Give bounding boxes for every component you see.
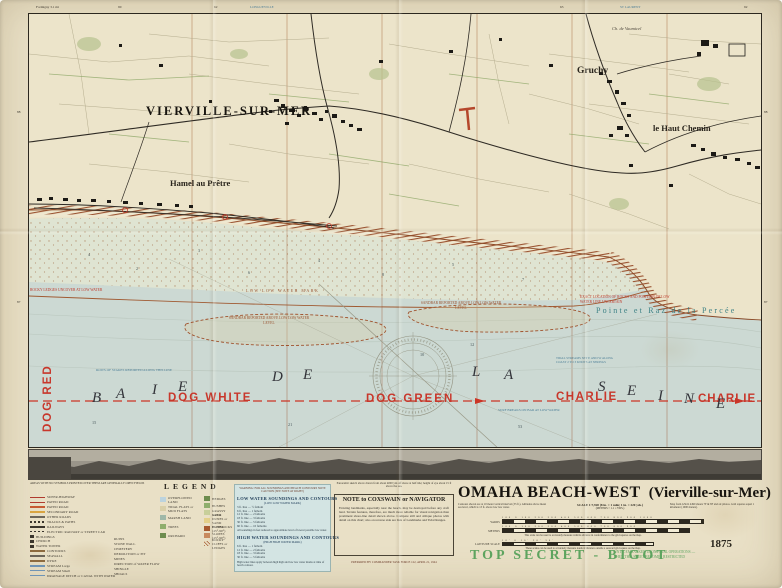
depth-number: 8 <box>382 272 384 277</box>
depth-number: 4 <box>318 258 320 263</box>
depth-number: 5 <box>452 262 454 267</box>
bar-label: LATITUDE SCALE <box>458 543 502 546</box>
legend-chip <box>30 550 45 552</box>
bar-label: YARDS <box>458 521 502 524</box>
low-water-note: All soundings in feet reduced to approxi… <box>237 529 328 532</box>
depth-number: 21 <box>288 422 292 427</box>
title-note-left: Contours shown are at 10 meter vertical … <box>458 503 548 510</box>
current-note: TIDAL STREAMS SET E AND W ALONG COAST 2 … <box>556 356 618 364</box>
legend-chip <box>204 541 210 546</box>
margin-label: ST LAURENT <box>620 5 641 9</box>
bar-label: METERS <box>458 530 502 533</box>
legend-chip <box>30 531 45 533</box>
legend-item: PAVED ROAD <box>47 505 68 509</box>
sea-name-letter: E <box>716 396 725 413</box>
legend-item: SUPER-HIGHWAY <box>47 495 75 499</box>
legend-item: CHURCH <box>36 539 50 543</box>
soundings-warning: WARNING: FOR ALL SOUNDINGS AND BEACH CON… <box>237 487 328 494</box>
legend-item: HEDGES <box>212 497 232 501</box>
sheet-title: OMAHA BEACH-WEST <box>458 484 641 501</box>
margin-label: 88 <box>17 110 20 114</box>
depth-number: 12 <box>470 342 474 347</box>
margin-label: Formigny 3.1 mi <box>36 5 59 9</box>
depth-number: 53 <box>518 424 522 429</box>
legend-item: STREAM Large <box>47 564 70 568</box>
margin-label: LONGUEVILLE <box>250 5 274 9</box>
margin-label: 63 <box>560 5 563 9</box>
sandbar-label-2: SANDBAR REPORTED ABOVE LOW LOW WATER LEV… <box>420 301 502 310</box>
stakes-note: ROWS OF STAKES REPORTED ALONG THIS LINE <box>96 368 176 372</box>
place-label-haut-chemin: le Haut Chemin <box>653 123 711 133</box>
sea-name-letter: D <box>272 369 283 386</box>
legend-col-b: RUINS STONE WALL CEMETERY DEMOLITION or … <box>114 537 158 576</box>
scale-bar <box>502 528 690 533</box>
legend-item: MINES <box>114 557 125 561</box>
scale-bar <box>502 542 654 547</box>
legend-chip <box>30 565 45 567</box>
legend-chip <box>204 496 210 501</box>
ledge-note: ROCKY LEDGES UNCOVER AT LOW WATER <box>30 288 110 293</box>
sheet-subtitle: (Vierville-sur-Mer) <box>649 485 771 501</box>
legend-chip <box>30 521 45 523</box>
sector-label-charlie-1: CHARLIE <box>556 391 618 403</box>
legend-item: STREAM Small <box>47 569 70 573</box>
margin-label: 92 <box>744 5 747 9</box>
legend-item: ORCHARD <box>168 534 198 538</box>
margin-label: 87 <box>17 300 20 304</box>
legend-chip <box>30 506 45 508</box>
sandbar-label-1: SANDBAR REPORTED ABOVE LOW LOW WATER LEV… <box>228 316 310 325</box>
legend-item: WATER TOWER <box>36 544 61 548</box>
margin-label: 87 <box>764 300 767 304</box>
legend-item: DEMOLITION or PIT <box>114 552 146 556</box>
legend-chip <box>30 511 45 513</box>
sea-name-letter: S <box>598 379 606 396</box>
depth-number: 4 <box>88 252 90 257</box>
legend-header: AREAS WITH NO SYMBOLS PRINTED OVER THEM … <box>30 482 158 486</box>
legend-item: OTHER ROADS <box>47 515 71 519</box>
sector-label-dog-red: DOG RED <box>42 364 54 432</box>
soundings-panel: WARNING: FOR ALL SOUNDINGS AND BEACH CON… <box>234 484 331 572</box>
legend-item: CEMETERY <box>114 547 132 551</box>
sheet-number: 1875 <box>710 538 732 550</box>
legend-col-d: HEDGES BUSHES GRASSY AREA SAND DUNES or … <box>204 495 232 548</box>
sea-name-letter: E <box>178 379 187 396</box>
legend-item: ROCKY CLIFFS or LEDGES <box>212 538 232 550</box>
legend-item: SECONDARY ROAD <box>47 510 78 514</box>
legend-item: PAVED ROAD <box>47 500 68 504</box>
legend-chip <box>30 502 45 504</box>
panorama-caption: Panoramic sketch above drawn from about … <box>334 482 454 489</box>
legend-item: TIDAL FLATS or MUD FLATS <box>168 505 198 513</box>
depth-number: 15 <box>92 420 96 425</box>
legend-chip <box>204 526 210 531</box>
legend-chip <box>160 515 166 520</box>
legend-item: DIRECTION of WATER FLOW <box>114 562 160 566</box>
coxswain-note-body: Existing landmarks, especially near the … <box>339 506 449 523</box>
legend-chip <box>160 533 166 538</box>
sea-name-letter: B <box>92 390 101 407</box>
classification-note-2: THEN THIS SHEET BECOMES RESTRICTED <box>614 555 695 560</box>
place-label-pointe: Pointe et Raz de la Percée <box>596 306 737 315</box>
legend-title: LEGEND <box>164 482 220 491</box>
rocks-note: EXACT LOCATION OF ROCKS AND POSITION OF … <box>580 295 672 304</box>
place-label-vierville: VIERVILLE-SUR-MER <box>146 104 312 119</box>
sector-label-dog-green: DOG GREEN <box>366 393 454 405</box>
legend-item: TRACKS & PATHS <box>47 520 75 524</box>
legend-chip <box>204 518 210 523</box>
legend-col-a: SUPER-HIGHWAY PAVED ROAD PAVED ROAD SECO… <box>30 495 110 578</box>
legend-chip <box>160 524 166 529</box>
depth-number: 6 <box>248 270 250 275</box>
high-water-note: High water lines apply between high high… <box>237 561 328 568</box>
place-label-hamel: Hamel au Prêtre <box>170 178 230 188</box>
margin-label: 62 <box>214 5 217 9</box>
sea-name-letter: A <box>116 386 125 403</box>
sounding-row: 60 ft. line — 10 fathoms <box>237 525 328 529</box>
legend-chip <box>30 540 34 544</box>
sea-name-letter: L <box>472 364 480 381</box>
legend-chip <box>160 506 166 511</box>
panorama-strip <box>28 449 762 480</box>
legend-item: DYKE <box>47 559 57 563</box>
legend-chip <box>30 555 45 557</box>
legend-item: TREES <box>168 525 198 529</box>
legend-item: BUSHES <box>212 504 232 508</box>
surf-note: SURF BREAKS ON BAR AT LOW WATER <box>498 408 568 412</box>
scale-sub: (METERS × 1.1 = YDS.) <box>554 507 666 510</box>
legend-chip <box>204 510 210 515</box>
legend-item: ELECTRIC RAILWAY or STREET CAR <box>47 530 105 534</box>
sector-label-charlie-2: CHARLIE <box>698 393 756 405</box>
margin-label: 90 <box>118 5 121 9</box>
legend-item: DRAINAGE DITCH or CANAL WITH WATER <box>47 574 115 578</box>
place-label-chateau: Ch. de Vaumicel <box>612 26 641 31</box>
legend-chip <box>30 535 34 539</box>
sea-name-letter: I <box>152 382 157 399</box>
legend-item: MARSH LAND <box>168 516 198 520</box>
legend-chip <box>30 545 34 549</box>
bar-note-1: This scale can be used to accurately mea… <box>458 534 708 537</box>
place-label-gruchy: Gruchy <box>577 66 608 76</box>
legend-item: STONE WALL <box>114 542 135 546</box>
legend-item: SEAWALL <box>47 554 63 558</box>
legend-chip <box>160 497 166 502</box>
scale-bar <box>502 519 704 524</box>
sea-name-letter: I <box>658 388 663 405</box>
legend-chip <box>30 526 45 528</box>
coxswain-note-title: NOTE to COXSWAIN or NAVIGATOR <box>339 497 449 503</box>
legend-item: BUILDINGS <box>36 535 55 539</box>
legend-chip <box>30 516 45 518</box>
llw-label: LOW LOW WATER MARK <box>246 288 319 293</box>
legend-chip <box>30 570 45 571</box>
depth-number: 2 <box>136 266 138 271</box>
map-artwork <box>29 14 761 447</box>
depth-number: 10 <box>420 352 424 357</box>
map-sheet: VIERVILLE-SUR-MER Hamel au Prêtre Gruchy… <box>0 0 782 588</box>
legend-chip <box>30 575 45 577</box>
sea-name-letter: E <box>627 383 636 400</box>
depth-number: 7 <box>522 277 524 282</box>
prepared-by-line: PREPARED BY COMMANDER TASK FORCE 122, AP… <box>334 560 454 564</box>
title-block: OMAHA BEACH-WEST (Vierville-sur-Mer) Con… <box>458 484 760 584</box>
legend-item: RAILWAYS <box>47 525 64 529</box>
sea-name-letter: A <box>504 367 513 384</box>
coxswain-note-panel: NOTE to COXSWAIN or NAVIGATOR Existing l… <box>334 494 454 556</box>
panorama-art <box>29 450 761 479</box>
title-note-right: Map from GSGS 4490 sheets 7F & 8F and ai… <box>670 503 760 510</box>
map-frame <box>28 13 762 448</box>
legend-item: CONTOURS <box>47 549 66 553</box>
legend-chip <box>204 533 210 538</box>
legend-item: SHINGLE <box>114 567 129 571</box>
legend-item: OVERFLOWED LAND <box>168 496 198 504</box>
legend-item: RUINS <box>114 537 124 541</box>
legend-panel: AREAS WITH NO SYMBOLS PRINTED OVER THEM … <box>30 482 232 584</box>
margin-label: 88 <box>764 110 767 114</box>
legend-chip <box>30 560 45 562</box>
legend-chip <box>30 497 45 499</box>
legend-col-c: OVERFLOWED LAND TIDAL FLATS or MUD FLATS… <box>160 495 202 540</box>
sounding-row: 30 ft. line — 5 fathoms <box>237 556 328 560</box>
sea-name-letter: E <box>303 367 312 384</box>
depth-number: 3 <box>198 248 200 253</box>
legend-item: SHOALS <box>114 572 127 576</box>
sea-name-letter: N <box>684 391 694 408</box>
legend-chip <box>204 503 210 508</box>
